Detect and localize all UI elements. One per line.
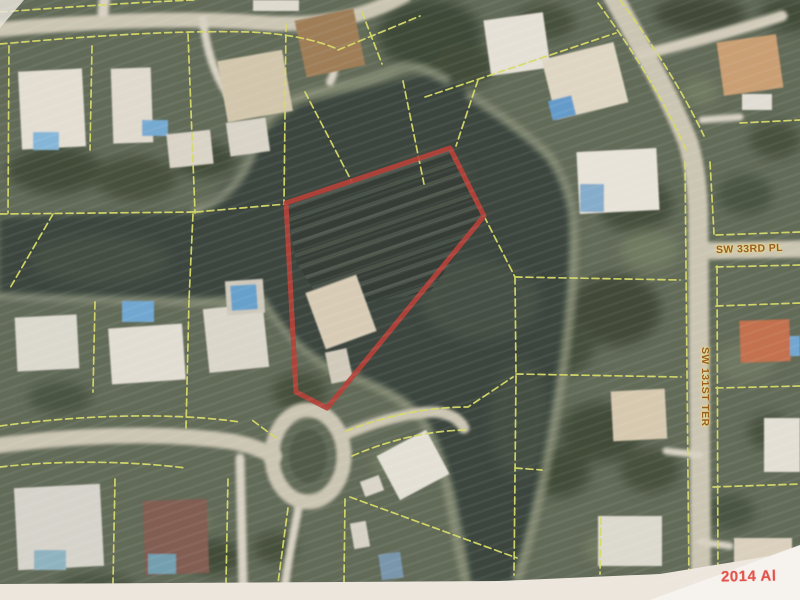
map-canvas <box>0 0 800 600</box>
street-label-sw-33rd-pl: SW 33RD PL <box>716 242 783 256</box>
photo-wash-overlay <box>0 0 800 600</box>
street-label-sw-131st-ter: SW 131ST TER <box>699 347 711 426</box>
aerial-map-photo: SW 33RD PL SW 131ST TER 2014 Al <box>0 0 800 600</box>
year-watermark: 2014 Al <box>721 568 777 586</box>
